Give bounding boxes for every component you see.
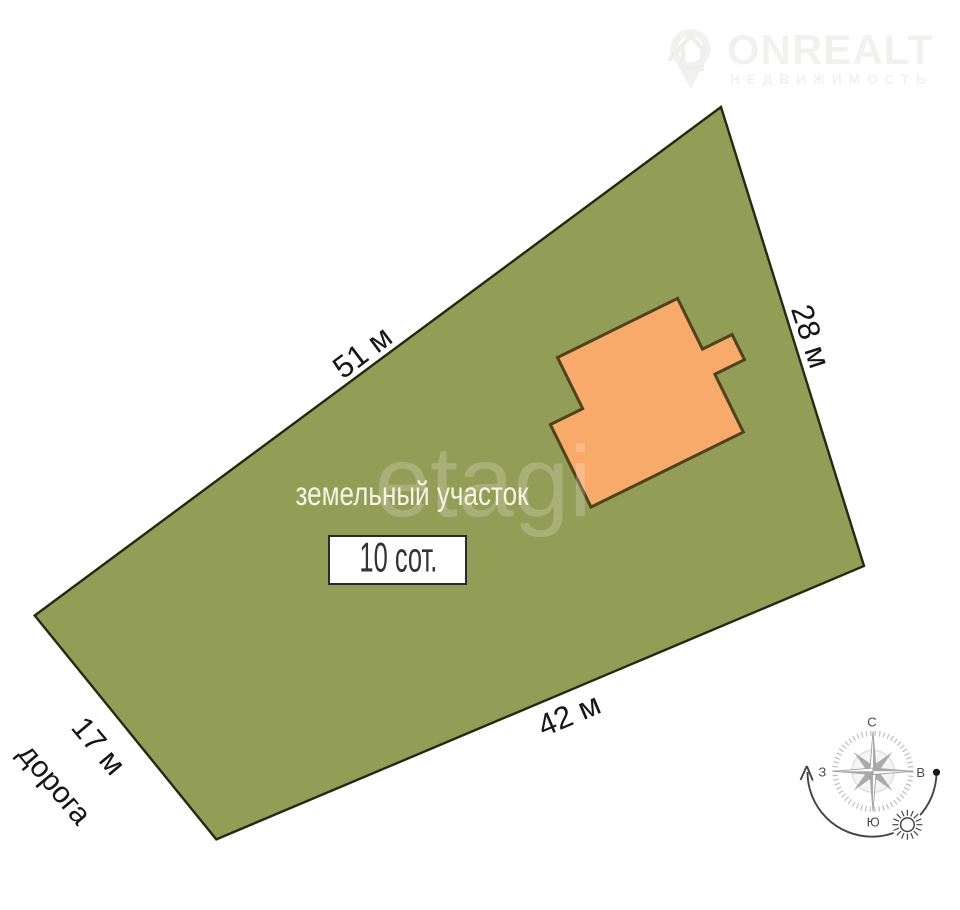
- svg-text:земельный участок: земельный участок: [296, 475, 529, 512]
- svg-text:ONREALT: ONREALT: [727, 26, 934, 73]
- svg-text:З: З: [818, 764, 826, 779]
- svg-text:НЕДВИЖИМОСТЬ: НЕДВИЖИМОСТЬ: [730, 72, 933, 87]
- svg-text:10 сот.: 10 сот.: [359, 534, 437, 581]
- svg-text:В: В: [916, 765, 925, 780]
- svg-text:С: С: [867, 715, 876, 730]
- svg-text:Ю: Ю: [867, 815, 880, 830]
